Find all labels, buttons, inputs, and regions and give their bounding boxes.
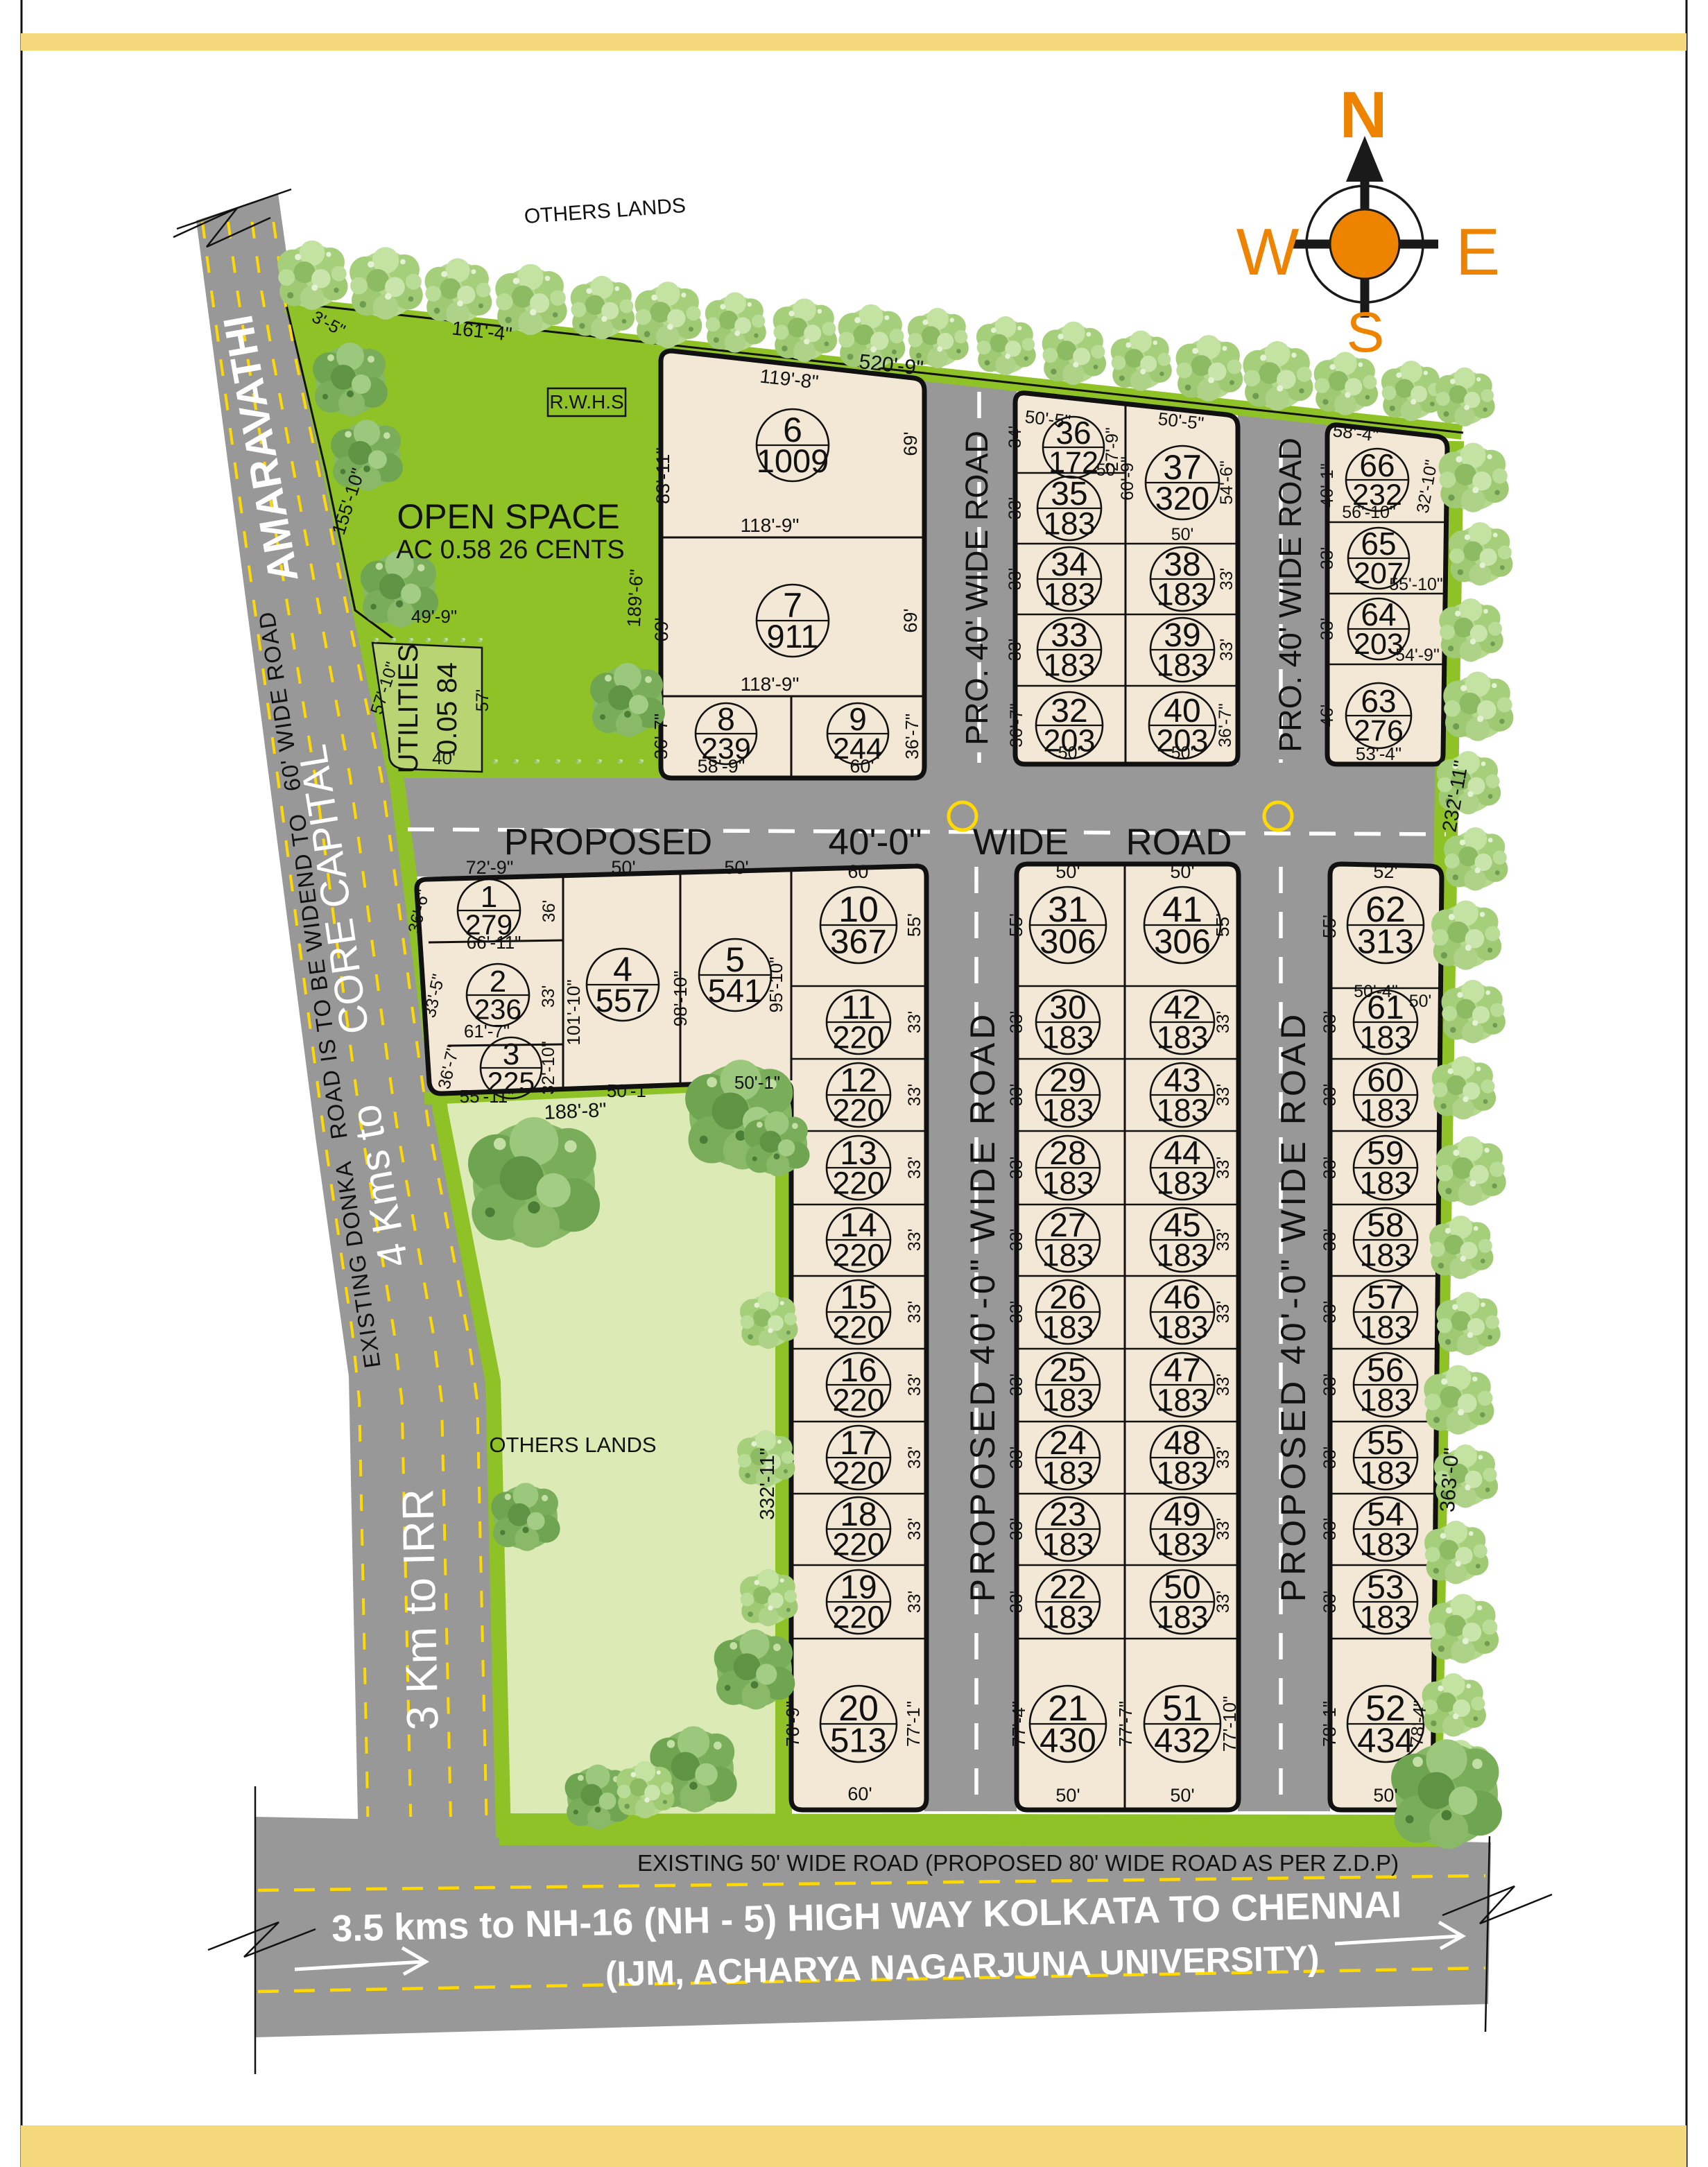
- svg-text:50'-1": 50'-1": [734, 1072, 780, 1093]
- svg-text:50'-1": 50'-1": [607, 1080, 653, 1101]
- svg-text:434: 434: [1357, 1723, 1414, 1760]
- svg-text:WIDE: WIDE: [973, 822, 1069, 863]
- svg-text:50': 50': [1096, 460, 1119, 480]
- svg-text:220: 220: [832, 1526, 884, 1562]
- svg-text:77'-7": 77'-7": [1115, 1701, 1136, 1747]
- svg-text:183: 183: [1156, 1455, 1208, 1490]
- svg-text:183: 183: [1359, 1599, 1411, 1634]
- svg-text:33': 33': [1007, 1084, 1026, 1107]
- svg-text:61'-7": 61'-7": [464, 1021, 510, 1042]
- svg-text:33': 33': [1214, 1157, 1233, 1180]
- svg-text:55': 55': [904, 913, 924, 937]
- svg-text:53'-4": 53'-4": [1356, 743, 1401, 764]
- svg-text:183: 183: [1043, 647, 1095, 682]
- svg-text:40'-1": 40'-1": [1318, 463, 1337, 508]
- svg-text:UTILITIES: UTILITIES: [393, 644, 424, 774]
- svg-text:50': 50': [1409, 992, 1432, 1011]
- svg-text:40': 40': [432, 748, 456, 768]
- svg-text:E: E: [1456, 215, 1500, 289]
- svg-text:911: 911: [767, 618, 819, 655]
- svg-text:55': 55': [1212, 913, 1233, 937]
- svg-text:33': 33': [1320, 1157, 1340, 1180]
- svg-text:183: 183: [1042, 1382, 1094, 1417]
- svg-text:33': 33': [1007, 1157, 1026, 1180]
- svg-text:83'-11": 83'-11": [653, 447, 673, 504]
- svg-text:33': 33': [905, 1518, 924, 1541]
- svg-text:R.W.H.S: R.W.H.S: [549, 391, 623, 413]
- svg-text:33': 33': [1318, 547, 1337, 570]
- svg-text:33': 33': [1214, 1011, 1233, 1034]
- svg-text:33': 33': [905, 1011, 924, 1034]
- svg-text:313: 313: [1357, 924, 1414, 961]
- svg-text:33': 33': [1214, 1301, 1233, 1324]
- svg-text:183: 183: [1359, 1526, 1411, 1562]
- svg-text:PROPOSED 40'-0" WIDE ROAD: PROPOSED 40'-0" WIDE ROAD: [963, 1011, 1002, 1602]
- svg-text:33': 33': [1214, 1084, 1233, 1107]
- svg-text:69': 69': [900, 608, 921, 632]
- svg-text:54'-6": 54'-6": [1217, 460, 1236, 505]
- svg-text:ROAD: ROAD: [1125, 822, 1232, 863]
- svg-text:33': 33': [1006, 639, 1025, 662]
- svg-text:77'-4": 77'-4": [1008, 1701, 1029, 1747]
- svg-text:33': 33': [1214, 1229, 1233, 1252]
- svg-text:36'-7": 36'-7": [1007, 703, 1026, 748]
- svg-text:33': 33': [539, 985, 558, 1008]
- svg-text:N: N: [1340, 78, 1388, 152]
- svg-text:220: 220: [832, 1165, 884, 1200]
- svg-text:95'-10": 95'-10": [766, 957, 786, 1013]
- svg-text:54'-9": 54'-9": [1395, 646, 1440, 665]
- svg-text:118'-9": 118'-9": [741, 673, 800, 695]
- svg-text:183: 183: [1359, 1237, 1411, 1272]
- svg-text:332'-11": 332'-11": [757, 1448, 779, 1520]
- svg-text:34': 34': [1006, 426, 1025, 449]
- svg-text:66'-11": 66'-11": [467, 932, 521, 953]
- svg-text:183: 183: [1359, 1165, 1411, 1200]
- svg-text:69': 69': [651, 617, 672, 641]
- svg-text:432: 432: [1154, 1723, 1211, 1760]
- svg-text:58'-9": 58'-9": [698, 756, 745, 777]
- svg-text:33': 33': [1217, 639, 1236, 662]
- svg-text:557: 557: [596, 982, 650, 1019]
- svg-text:50': 50': [1171, 525, 1194, 544]
- svg-text:183: 183: [1156, 1526, 1208, 1562]
- svg-text:183: 183: [1156, 1237, 1208, 1272]
- svg-text:513: 513: [830, 1723, 887, 1760]
- svg-text:183: 183: [1042, 1599, 1094, 1634]
- svg-text:306: 306: [1040, 924, 1096, 961]
- svg-text:183: 183: [1156, 1019, 1208, 1055]
- svg-text:PROPOSED 40'-0" WIDE ROAD: PROPOSED 40'-0" WIDE ROAD: [1274, 1011, 1313, 1602]
- svg-text:55': 55': [1319, 915, 1340, 938]
- svg-text:220: 220: [832, 1237, 884, 1272]
- svg-text:33': 33': [1214, 1374, 1233, 1397]
- svg-text:183: 183: [1042, 1237, 1094, 1272]
- svg-text:33': 33': [1320, 1229, 1340, 1252]
- svg-text:33': 33': [905, 1447, 924, 1469]
- svg-text:183: 183: [1359, 1455, 1411, 1490]
- svg-text:33': 33': [905, 1591, 924, 1614]
- svg-text:78'-1": 78'-1": [1319, 1701, 1340, 1747]
- svg-text:AC 0.58 26 CENTS: AC 0.58 26 CENTS: [396, 535, 624, 564]
- svg-text:220: 220: [832, 1309, 884, 1345]
- svg-text:220: 220: [832, 1599, 884, 1634]
- svg-text:OTHERS LANDS: OTHERS LANDS: [489, 1433, 656, 1457]
- svg-text:33': 33': [1007, 1301, 1026, 1324]
- svg-text:276: 276: [1354, 714, 1404, 748]
- svg-text:33': 33': [905, 1157, 924, 1180]
- svg-text:183: 183: [1156, 1309, 1208, 1345]
- svg-text:69': 69': [900, 431, 921, 456]
- svg-text:60': 60': [849, 756, 874, 777]
- svg-text:183: 183: [1359, 1092, 1411, 1128]
- svg-text:50': 50': [1055, 1785, 1080, 1806]
- svg-text:33': 33': [905, 1374, 924, 1397]
- svg-text:33': 33': [1006, 568, 1025, 591]
- svg-text:33': 33': [905, 1301, 924, 1324]
- svg-text:55'-11": 55'-11": [460, 1086, 515, 1107]
- svg-text:183: 183: [1042, 1019, 1094, 1055]
- svg-text:50': 50': [1170, 1785, 1194, 1806]
- svg-text:33': 33': [1007, 1518, 1026, 1541]
- svg-text:50': 50': [1055, 861, 1080, 882]
- svg-text:33': 33': [1320, 1591, 1340, 1614]
- svg-text:363'-0": 363'-0": [1436, 1447, 1463, 1513]
- svg-text:220: 220: [832, 1455, 884, 1490]
- svg-text:50': 50': [1373, 1785, 1397, 1806]
- svg-text:183: 183: [1359, 1019, 1411, 1055]
- svg-text:183: 183: [1359, 1309, 1411, 1345]
- svg-text:183: 183: [1156, 1382, 1208, 1417]
- svg-text:60': 60': [847, 861, 872, 882]
- svg-text:46': 46': [1318, 705, 1337, 727]
- svg-text:183: 183: [1156, 1092, 1208, 1128]
- svg-text:EXISTING 50' WIDE ROAD (PROPO: EXISTING 50' WIDE ROAD (PROPOSED 80' WID…: [637, 1850, 1399, 1876]
- svg-text:33': 33': [1007, 1229, 1026, 1252]
- svg-text:183: 183: [1156, 1165, 1208, 1200]
- svg-text:36'-7": 36'-7": [650, 714, 671, 759]
- svg-text:77'-10": 77'-10": [1219, 1696, 1240, 1752]
- svg-text:183: 183: [1042, 1455, 1094, 1490]
- svg-text:183: 183: [1043, 506, 1095, 541]
- svg-text:PRO. 40' WIDE ROAD: PRO. 40' WIDE ROAD: [1273, 438, 1308, 752]
- svg-text:55'-10": 55'-10": [1389, 575, 1443, 594]
- svg-text:430: 430: [1040, 1723, 1096, 1760]
- svg-text:183: 183: [1156, 647, 1208, 682]
- svg-text:33': 33': [1320, 1374, 1340, 1397]
- svg-text:50': 50': [724, 857, 748, 878]
- svg-text:50': 50': [1171, 743, 1194, 763]
- svg-text:33': 33': [1214, 1518, 1233, 1541]
- svg-text:PRO. 40' WIDE ROAD: PRO. 40' WIDE ROAD: [959, 431, 994, 745]
- svg-text:52': 52': [1373, 861, 1397, 882]
- svg-text:33': 33': [1320, 1084, 1340, 1107]
- svg-text:183: 183: [1042, 1092, 1094, 1128]
- svg-text:183: 183: [1043, 576, 1095, 612]
- svg-text:183: 183: [1042, 1526, 1094, 1562]
- svg-text:W: W: [1236, 215, 1300, 289]
- svg-text:49'-9": 49'-9": [411, 606, 457, 627]
- svg-text:32'-10": 32'-10": [539, 1041, 558, 1095]
- svg-text:220: 220: [832, 1382, 884, 1417]
- svg-text:183: 183: [1042, 1309, 1094, 1345]
- svg-text:36'-7": 36'-7": [902, 714, 922, 759]
- svg-text:3 Km to IRR: 3 Km to IRR: [393, 1488, 447, 1731]
- svg-text:56'-10": 56'-10": [1342, 503, 1396, 522]
- svg-text:118'-9": 118'-9": [741, 515, 800, 536]
- svg-text:0.05 84: 0.05 84: [432, 662, 463, 754]
- svg-text:55': 55': [1006, 913, 1026, 937]
- svg-text:98'-10": 98'-10": [670, 971, 691, 1027]
- svg-text:33': 33': [1007, 1011, 1026, 1034]
- svg-text:33': 33': [905, 1084, 924, 1107]
- svg-text:33': 33': [1007, 1591, 1026, 1614]
- svg-text:33': 33': [1318, 618, 1337, 641]
- svg-text:188'-8": 188'-8": [544, 1099, 607, 1124]
- svg-text:172: 172: [1049, 446, 1098, 479]
- svg-text:33': 33': [1320, 1301, 1340, 1324]
- svg-text:50'-4": 50'-4": [1354, 982, 1398, 1001]
- svg-text:36'-7": 36'-7": [1216, 703, 1235, 748]
- svg-text:183: 183: [1156, 1599, 1208, 1634]
- svg-text:101'-10": 101'-10": [563, 979, 584, 1045]
- svg-text:33': 33': [905, 1229, 924, 1252]
- svg-text:320: 320: [1155, 480, 1209, 517]
- svg-text:78'-4": 78'-4": [1406, 1700, 1431, 1747]
- svg-text:33': 33': [1214, 1591, 1233, 1614]
- svg-text:33': 33': [1214, 1447, 1233, 1469]
- svg-text:33': 33': [1217, 568, 1236, 591]
- svg-text:220: 220: [832, 1019, 884, 1055]
- svg-text:33': 33': [1007, 1447, 1026, 1469]
- svg-text:183: 183: [1359, 1382, 1411, 1417]
- svg-text:60': 60': [847, 1784, 872, 1804]
- svg-text:S: S: [1347, 301, 1385, 364]
- svg-text:220: 220: [832, 1092, 884, 1128]
- svg-text:306: 306: [1154, 924, 1211, 961]
- svg-text:36': 36': [540, 900, 559, 923]
- svg-text:183: 183: [1156, 576, 1208, 612]
- svg-text:33': 33': [1320, 1518, 1340, 1541]
- svg-text:77'-1": 77'-1": [903, 1701, 924, 1747]
- svg-text:33': 33': [1006, 497, 1025, 520]
- svg-text:60'-9": 60'-9": [1118, 456, 1137, 501]
- svg-text:57': 57': [473, 689, 492, 712]
- svg-text:40'-0": 40'-0": [828, 822, 922, 863]
- svg-text:50': 50': [1170, 861, 1194, 882]
- svg-text:PROPOSED: PROPOSED: [504, 822, 712, 863]
- svg-text:76'-9": 76'-9": [782, 1701, 803, 1747]
- svg-text:183: 183: [1042, 1165, 1094, 1200]
- svg-text:33': 33': [1007, 1374, 1026, 1397]
- svg-text:50': 50': [1058, 743, 1081, 763]
- svg-text:189'-6": 189'-6": [623, 569, 647, 628]
- svg-text:1009: 1009: [757, 442, 829, 479]
- svg-text:541: 541: [708, 972, 762, 1009]
- svg-text:367: 367: [830, 924, 887, 961]
- svg-text:33': 33': [1320, 1011, 1340, 1034]
- svg-text:33': 33': [1320, 1447, 1340, 1469]
- svg-text:OPEN SPACE: OPEN SPACE: [397, 497, 619, 536]
